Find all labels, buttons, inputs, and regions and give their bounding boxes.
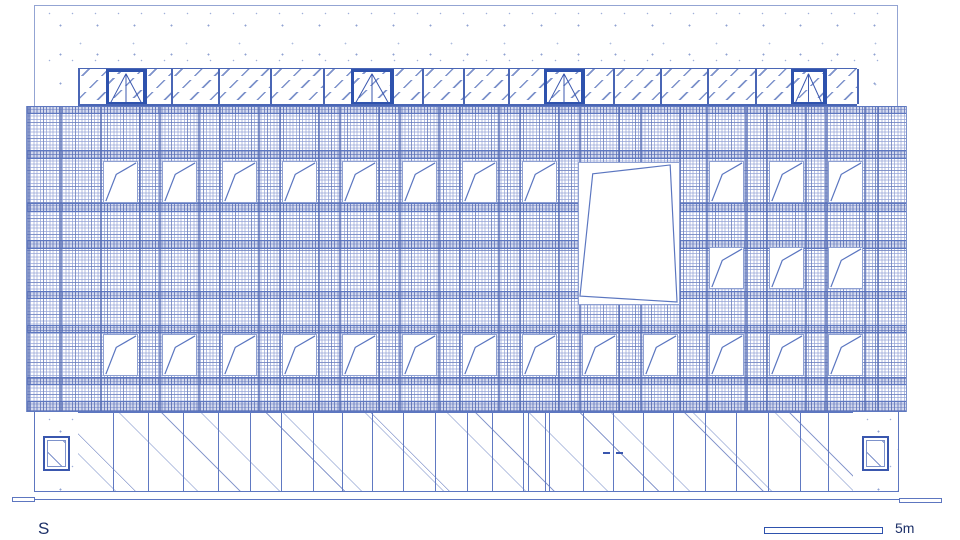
- window-opening: [769, 247, 804, 289]
- elevation-drawing-south: S 5m: [0, 0, 960, 540]
- roof-panel-divider: [218, 69, 220, 104]
- roof-door-panel: [792, 69, 825, 104]
- roof-glazing-band: [78, 68, 857, 106]
- mesh-heavy-vertical: [60, 107, 62, 411]
- door-handle-right: [616, 452, 623, 454]
- roof-glass-panel: [171, 69, 218, 104]
- orientation-label: S: [38, 519, 49, 539]
- open-flap-icon: [163, 335, 196, 375]
- ground-window-frame: [43, 436, 70, 471]
- glazing-mullion: [492, 412, 493, 491]
- open-flap-icon: [770, 335, 803, 375]
- door-swing-icon: [794, 72, 823, 105]
- open-flap-icon: [770, 162, 803, 202]
- ground-window-glass: [866, 440, 885, 467]
- window-opening: [709, 247, 744, 289]
- window-opening: [103, 334, 138, 376]
- window-opening: [709, 161, 744, 203]
- glazing-mullion: [372, 412, 373, 491]
- mesh-heavy-vertical: [498, 107, 500, 411]
- ground-window-frame: [862, 436, 889, 471]
- mesh-heavy-vertical: [318, 107, 320, 411]
- roof-glass-panel: [707, 69, 755, 104]
- door-swing-icon: [547, 72, 581, 106]
- window-opening: [342, 334, 377, 376]
- open-flap-icon: [104, 335, 137, 375]
- glazing-mullion: [183, 412, 184, 491]
- roof-glass-panel: [392, 69, 422, 104]
- open-flap-icon: [710, 248, 743, 288]
- window-opening: [582, 334, 617, 376]
- roof-panel-divider: [171, 69, 173, 104]
- glazing-mullion: [313, 412, 314, 491]
- open-flap-icon: [223, 335, 256, 375]
- door-swing-icon: [354, 72, 390, 106]
- open-flap-icon: [829, 248, 862, 288]
- window-opening: [162, 334, 197, 376]
- window-opening: [522, 161, 557, 203]
- glazing-mullion: [523, 412, 524, 491]
- base-plinth: [34, 491, 899, 500]
- glazing-mullion: [342, 412, 343, 491]
- glazing-mullion: [800, 412, 801, 491]
- open-flap-icon: [343, 335, 376, 375]
- glazing-mullion: [148, 412, 149, 491]
- open-flap-icon: [463, 162, 496, 202]
- open-flap-icon: [829, 162, 862, 202]
- glazing-mullion: [828, 412, 829, 491]
- roof-door-frame-post: [351, 69, 354, 104]
- open-flap-icon: [343, 162, 376, 202]
- window-opening: [709, 334, 744, 376]
- mesh-heavy-vertical: [279, 107, 281, 411]
- entrance-door-centerline: [613, 412, 614, 491]
- roof-panel-divider: [755, 69, 757, 104]
- roof-panel-divider: [707, 69, 709, 104]
- mesh-heavy-vertical: [745, 107, 747, 411]
- window-opening: [402, 161, 437, 203]
- roof-glass-panel: [218, 69, 270, 104]
- roof-glass-panel: [755, 69, 792, 104]
- open-flap-icon: [223, 162, 256, 202]
- mesh-heavy-vertical: [519, 107, 521, 411]
- mesh-heavy-vertical: [339, 107, 341, 411]
- glazing-mullion: [218, 412, 219, 491]
- window-opening: [103, 161, 138, 203]
- mesh-heavy-vertical: [805, 107, 807, 411]
- roof-glass-panel: [660, 69, 707, 104]
- mesh-heavy-vertical: [219, 107, 221, 411]
- open-flap-icon: [770, 248, 803, 288]
- open-flap-icon: [710, 335, 743, 375]
- mesh-heavy-vertical: [159, 107, 161, 411]
- roof-glass-panel: [145, 69, 171, 104]
- roof-glass-panel: [613, 69, 660, 104]
- door-swing-icon: [109, 72, 143, 106]
- roof-panel-divider: [323, 69, 325, 104]
- window-opening: [769, 334, 804, 376]
- roof-panel-divider: [422, 69, 424, 104]
- mesh-heavy-vertical: [28, 107, 30, 411]
- window-opening: [462, 334, 497, 376]
- large-facade-opening: [578, 162, 680, 305]
- roof-glass-panel: [422, 69, 463, 104]
- roof-door-frame-post: [391, 69, 394, 104]
- roof-door-frame-post: [791, 69, 794, 104]
- open-flap-icon: [710, 162, 743, 202]
- base-step-left: [12, 497, 35, 502]
- roof-panel-divider: [613, 69, 615, 104]
- roof-door-frame-post: [144, 69, 147, 104]
- open-flap-icon: [644, 335, 677, 375]
- roof-panel-divider: [78, 69, 80, 104]
- glazing-mullion: [545, 412, 546, 491]
- roof-glass-panel: [323, 69, 352, 104]
- large-open-panel-icon: [579, 163, 679, 304]
- window-opening: [828, 161, 863, 203]
- roof-door-frame-post: [544, 69, 547, 104]
- glazing-mullion: [528, 412, 529, 491]
- glazing-mullion: [281, 412, 282, 491]
- open-flap-icon: [163, 162, 196, 202]
- mesh-heavy-vertical: [864, 107, 866, 411]
- mesh-heavy-vertical: [825, 107, 827, 411]
- mesh-heavy-vertical: [139, 107, 141, 411]
- roof-door-frame-post: [824, 69, 827, 104]
- glazing-mullion: [736, 412, 737, 491]
- open-flap-icon: [463, 335, 496, 375]
- mesh-heavy-vertical: [877, 107, 879, 411]
- mesh-heavy-vertical: [706, 107, 708, 411]
- glazing-mullion: [673, 412, 674, 491]
- glazing-mullion: [435, 412, 436, 491]
- base-step-right: [899, 498, 942, 503]
- window-opening: [282, 334, 317, 376]
- open-flap-icon: [829, 335, 862, 375]
- roof-door-frame-post: [582, 69, 585, 104]
- mesh-heavy-vertical: [258, 107, 260, 411]
- mesh-heavy-vertical: [378, 107, 380, 411]
- roof-panel-divider: [508, 69, 510, 104]
- open-flap-icon: [403, 162, 436, 202]
- open-flap-icon: [403, 335, 436, 375]
- scale-bar: [764, 527, 883, 534]
- glazing-mullion: [643, 412, 644, 491]
- door-handle-left: [603, 452, 610, 454]
- open-flap-icon: [283, 162, 316, 202]
- roof-glass-panel: [825, 69, 857, 104]
- glazing-mullion: [768, 412, 769, 491]
- window-opening: [769, 161, 804, 203]
- glazing-mullion: [403, 412, 404, 491]
- glazing-mullion: [250, 412, 251, 491]
- roof-glass-panel: [583, 69, 613, 104]
- open-flap-icon: [104, 162, 137, 202]
- roof-glass-panel: [463, 69, 508, 104]
- mesh-heavy-vertical: [459, 107, 461, 411]
- roof-glass-panel: [508, 69, 545, 104]
- scale-label: 5m: [895, 520, 914, 536]
- open-flap-icon: [523, 162, 556, 202]
- roof-panel-divider: [270, 69, 272, 104]
- roof-door-panel: [545, 69, 583, 104]
- mesh-heavy-vertical: [399, 107, 401, 411]
- open-flap-icon: [523, 335, 556, 375]
- roof-panel-divider: [463, 69, 465, 104]
- window-opening: [462, 161, 497, 203]
- mesh-heavy-vertical: [558, 107, 560, 411]
- window-opening: [342, 161, 377, 203]
- glazing-mullion: [583, 412, 584, 491]
- window-opening: [222, 161, 257, 203]
- roof-door-panel: [352, 69, 392, 104]
- ground-window-glass: [47, 440, 66, 467]
- roof-door-panel: [107, 69, 145, 104]
- roof-panel-divider: [857, 69, 859, 104]
- window-opening: [828, 247, 863, 289]
- roof-glass-panel: [78, 69, 107, 104]
- mesh-heavy-vertical: [100, 107, 102, 411]
- window-opening: [282, 161, 317, 203]
- roof-door-frame-post: [106, 69, 109, 104]
- window-opening: [162, 161, 197, 203]
- glazing-mullion: [113, 412, 114, 491]
- window-opening: [222, 334, 257, 376]
- window-opening: [828, 334, 863, 376]
- roof-panel-divider: [660, 69, 662, 104]
- glazing-mullion: [549, 412, 550, 491]
- roof-glass-panel: [270, 69, 323, 104]
- glazing-mullion: [467, 412, 468, 491]
- open-flap-icon: [283, 335, 316, 375]
- mesh-heavy-vertical: [198, 107, 200, 411]
- window-opening: [643, 334, 678, 376]
- mesh-heavy-vertical: [766, 107, 768, 411]
- window-opening: [522, 334, 557, 376]
- glazing-mullion: [705, 412, 706, 491]
- mesh-heavy-vertical: [438, 107, 440, 411]
- window-opening: [402, 334, 437, 376]
- open-flap-icon: [583, 335, 616, 375]
